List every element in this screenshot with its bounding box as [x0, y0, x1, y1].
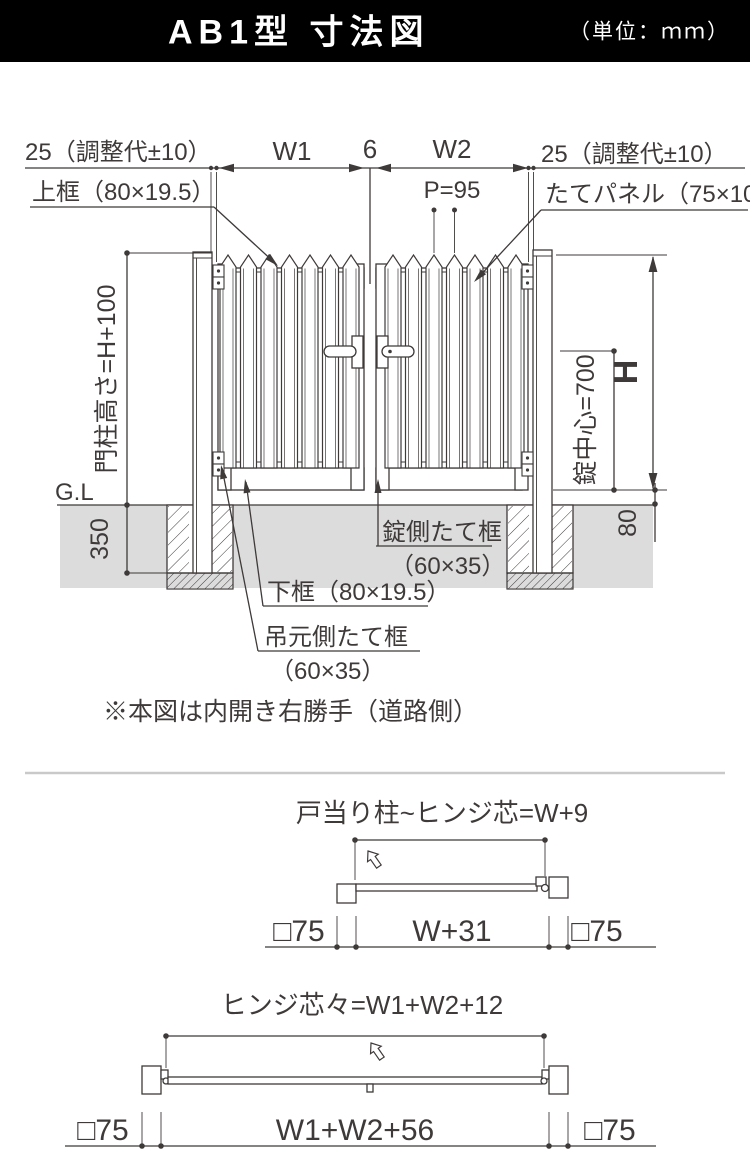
note-text: ※本図は内開き右勝手（道路側）: [103, 698, 478, 726]
swing-direction-arrow-icon: [363, 847, 385, 870]
right-gate-post: [533, 250, 552, 573]
hinge-stile-size-label: （60×35）: [270, 658, 385, 685]
label-lock-stile: 錠側たて框 （60×35）: [375, 479, 506, 580]
dim-height-h: H: [553, 255, 667, 490]
left-gate-post: [193, 252, 212, 573]
plan-b-left-post-label: □75: [77, 1114, 129, 1147]
plan-b-right-post-label: □75: [584, 1114, 636, 1147]
height-label: H: [607, 360, 645, 385]
plan-view-double: ヒンジ芯々=W1+W2+12 □75 W1+W2+56: [65, 990, 656, 1149]
page: AB1型 寸法図 （単位：ｍｍ）: [0, 0, 750, 1173]
lock-center-label: 錠中心=700: [572, 354, 600, 485]
panel-label: たてパネル（75×10）: [545, 181, 750, 208]
plan-a-title: 戸当り柱~ヒンジ芯=W+9: [296, 798, 589, 828]
dim-adjust-right-label: 25（調整代±10）: [541, 141, 728, 168]
depth-label: 350: [86, 518, 114, 560]
dim-pitch: P=95: [424, 177, 481, 253]
dim-w2-label: W2: [433, 134, 472, 164]
bottom-rail-label: 下框（80×19.5）: [267, 579, 450, 606]
ground-level-label: G.L: [55, 479, 94, 506]
hinge-stile-label: 吊元側たて框: [264, 624, 408, 651]
plan-a-right-post-label: □75: [571, 915, 623, 948]
gate-left-leaf: [218, 255, 364, 490]
dim-gap6-label: 6: [363, 134, 377, 164]
lock-stile-size-label: （60×35）: [390, 553, 505, 580]
plan-b-title: ヒンジ芯々=W1+W2+12: [221, 990, 503, 1020]
dim-adjust-left-label: 25（調整代±10）: [25, 139, 212, 166]
pitch-label: P=95: [424, 177, 481, 204]
lock-stile-label: 錠側たて框: [382, 519, 502, 546]
swing-direction-arrow-icon: [366, 1039, 388, 1062]
plan-a-span-label: W+31: [412, 915, 491, 948]
bottom-clearance-label: 80: [614, 509, 642, 537]
dim-top-width: 25（調整代±10） W1 6 W2 25（調整代±10）: [25, 134, 745, 284]
post-height-label: 門柱高さ=H+100: [93, 285, 121, 474]
plan-view-single: 戸当り柱~ヒンジ芯=W+9 □75 W+31 □75: [265, 798, 656, 950]
top-rail-label: 上框（80×19.5）: [32, 179, 215, 206]
dimension-drawing: 25（調整代±10） W1 6 W2 25（調整代±10） 上框（80×19.5…: [0, 0, 750, 1173]
plan-b-span-label: W1+W2+56: [276, 1114, 434, 1147]
gate-right-leaf: [376, 255, 528, 490]
dim-w1-label: W1: [273, 136, 312, 166]
plan-a-left-post-label: □75: [273, 915, 325, 948]
